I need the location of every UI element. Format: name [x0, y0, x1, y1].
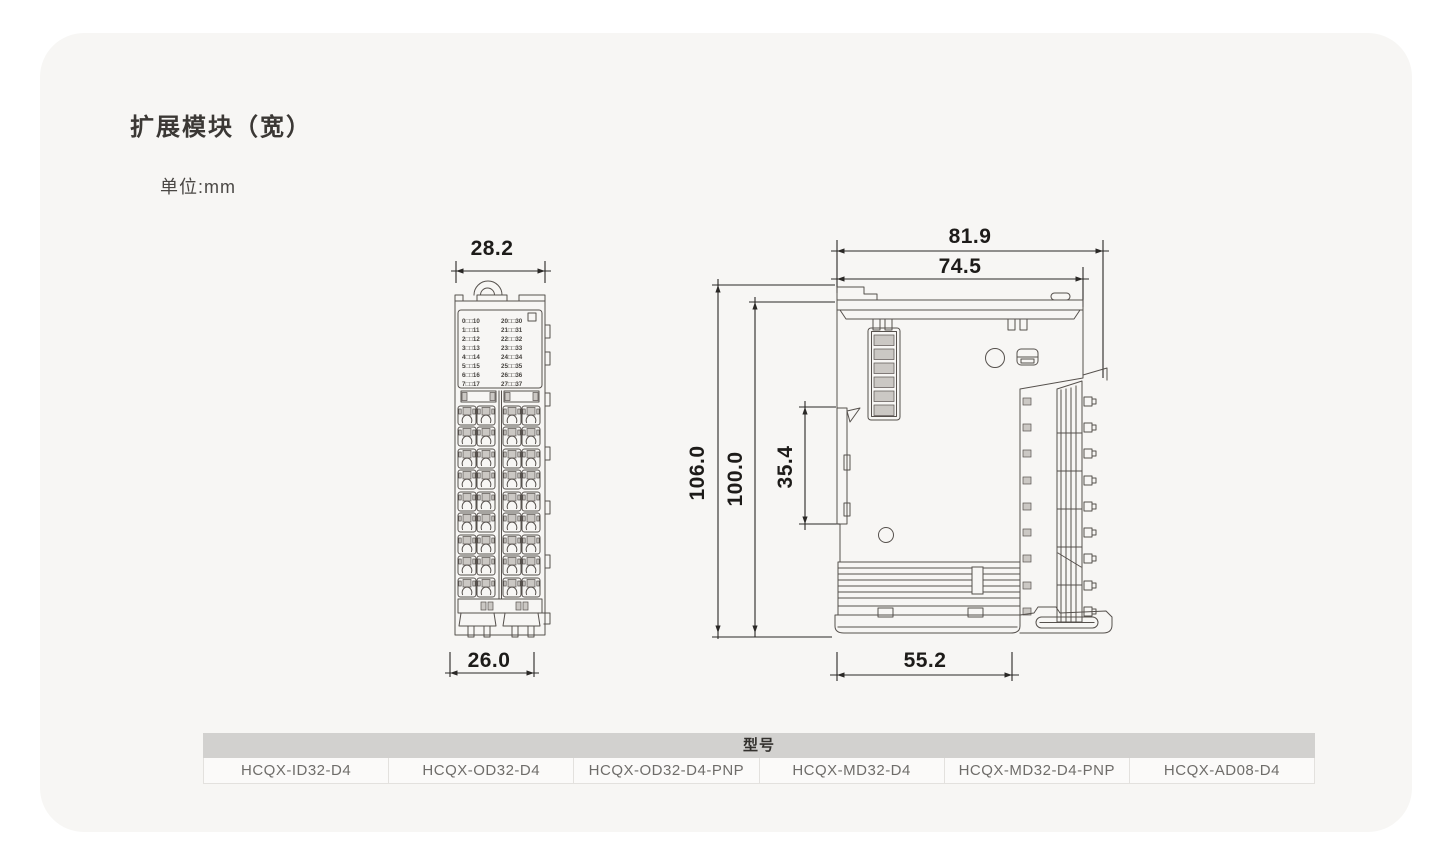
- led-label: 21□□31: [501, 327, 523, 334]
- side-dim-55-value: 55.2: [904, 649, 947, 672]
- led-label: 2□□12: [462, 336, 480, 343]
- bus-pins: [1023, 397, 1096, 616]
- screw-hole-lower: [879, 528, 894, 543]
- model-cell: HCQX-OD32-D4: [389, 758, 574, 783]
- side-dim-100-value: 100.0: [724, 451, 747, 506]
- led-label: 0□□10: [462, 318, 480, 325]
- led-label: 26□□36: [501, 372, 523, 379]
- front-dim-bottom-value: 26.0: [468, 649, 511, 672]
- content-card: 扩展模块（宽） 单位:mm 28.2: [40, 33, 1412, 832]
- page-title: 扩展模块（宽）: [130, 107, 312, 142]
- side-dim-height-outer: 106.0: [686, 279, 835, 639]
- side-dim-width-outer: 81.9: [831, 225, 1109, 378]
- model-cell: HCQX-MD32-D4-PNP: [945, 758, 1130, 783]
- front-view-drawing: 28.2 0□□10: [425, 225, 575, 695]
- led-label: 7□□17: [462, 381, 480, 388]
- model-table-header: 型号: [203, 733, 1315, 758]
- side-dim-81-value: 81.9: [949, 225, 992, 248]
- model-table-row: HCQX-ID32-D4 HCQX-OD32-D4 HCQX-OD32-D4-P…: [203, 758, 1315, 784]
- side-dim-35-value: 35.4: [774, 446, 797, 489]
- led-label: 25□□35: [501, 363, 523, 370]
- led-label: 1□□11: [462, 327, 480, 334]
- unit-label: 单位:mm: [160, 173, 236, 199]
- front-dim-top-value: 28.2: [471, 237, 514, 260]
- led-label: 5□□15: [462, 363, 480, 370]
- vent-slots: [868, 328, 900, 420]
- led-label: 27□□37: [501, 381, 523, 388]
- screw-hole: [986, 349, 1005, 368]
- model-table: 型号 HCQX-ID32-D4 HCQX-OD32-D4 HCQX-OD32-D…: [203, 733, 1315, 784]
- side-view-drawing: 81.9 74.5 106.0 100.0: [680, 215, 1120, 695]
- side-dim-width-inner: 74.5: [831, 255, 1089, 307]
- model-cell: HCQX-AD08-D4: [1130, 758, 1315, 783]
- model-cell: HCQX-OD32-D4-PNP: [574, 758, 759, 783]
- side-dim-74-value: 74.5: [939, 255, 982, 278]
- led-label: 6□□16: [462, 372, 480, 379]
- front-module-body: 0□□10 1□□11 2□□12 3□□13 4□□14 5□□15 6□□1…: [455, 281, 550, 637]
- led-panel: 0□□10 1□□11 2□□12 3□□13 4□□14 5□□15 6□□1…: [458, 310, 542, 388]
- side-dim-106-value: 106.0: [686, 445, 709, 500]
- side-dim-bottom: 55.2: [830, 649, 1019, 681]
- led-label: 22□□32: [501, 336, 523, 343]
- side-dim-din-clip: 35.4: [774, 401, 845, 530]
- led-label: 20□□30: [501, 318, 523, 325]
- led-label: 3□□13: [462, 345, 480, 352]
- side-module-body: [835, 287, 1112, 633]
- release-clip: [1017, 349, 1038, 365]
- model-cell: HCQX-MD32-D4: [760, 758, 945, 783]
- din-bracket: [837, 408, 860, 562]
- led-label: 4□□14: [462, 354, 480, 361]
- led-label: 24□□34: [501, 354, 523, 361]
- heatsink-fins: [838, 562, 1020, 606]
- model-cell: HCQX-ID32-D4: [203, 758, 389, 783]
- front-dim-top: 28.2: [451, 237, 551, 283]
- led-label: 23□□33: [501, 345, 523, 352]
- front-dim-bottom: 26.0: [445, 649, 539, 677]
